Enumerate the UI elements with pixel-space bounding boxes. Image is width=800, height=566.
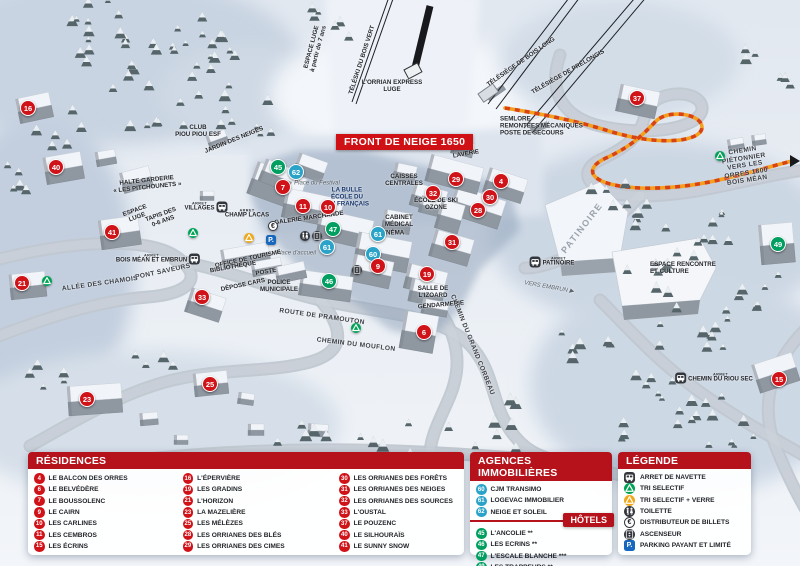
residences-column: 16L'ÉPERVIÈRE19LES GRADINS21L'HORIZON23L… [183,473,340,552]
map-marker-61[interactable]: 61 [319,239,335,255]
item-label: ARRET DE NAVETTE [640,474,706,481]
item-label: TRI SELECTIF [640,485,684,492]
agences-header: AGENCES IMMOBILIÈRES [470,452,612,481]
map-label-patinoire: PATINOIRE [559,201,605,256]
item-label: L'HORIZON [197,498,233,505]
marker-number: 37 [339,519,350,530]
map-marker-4[interactable]: 4 [493,173,509,189]
recycle-yellow-icon [624,495,635,506]
agency-item: 61LOGEVAC IMMOBILIER [476,495,606,506]
item-label: LE BOUSSOLENC [49,498,106,505]
front-de-neige-banner: FRONT DE NEIGE 1650 [336,134,473,150]
toilet-icon [300,231,310,241]
resort-map-page: 1640412133232545627111047616160946196312… [0,0,800,566]
item-label: LE CAIRN [49,509,80,516]
residence-item: 31LES ORRIANES DES NEIGES [339,484,460,495]
hotel-item: 49LES TRAPPEURS ** [476,562,606,566]
residences-column: 30LES ORRIANES DES FORÊTS31LES ORRIANES … [339,473,460,552]
bus-icon [189,254,200,265]
bus-stop-chemin-du-riou-sec: ARRETCHEMIN DU RIOU SEC [675,373,753,384]
marker-number: 10 [34,519,45,530]
marker-number: 47 [476,551,487,562]
marker-number: 4 [34,473,45,484]
map-marker-16[interactable]: 16 [20,100,36,116]
legende-header: LÉGENDE [618,452,751,469]
map-marker-21[interactable]: 21 [14,275,30,291]
bus-stop-label: PATINOIRE [543,261,575,268]
marker-number: 30 [339,473,350,484]
residence-item: 33L'OUSTAL [339,507,460,518]
item-label: LE SUNNY SNOW [354,543,410,550]
bus-stop-villages: ARRETVILLAGES [184,202,227,213]
residence-item: 40LE SILHOURAÏS [339,529,460,540]
map-marker-25[interactable]: 25 [202,376,218,392]
bus-stop-champ-lacas: ARRETCHAMP LACAS [225,209,269,220]
hotel-item: 47L'ESCALE BLANCHE *** [476,550,606,561]
residence-item: 7LE BOUSSOLENC [34,496,183,507]
map-marker-23[interactable]: 23 [79,391,95,407]
hotels-header: HÔTELS [563,513,614,527]
elevator-icon [352,265,362,275]
residence-item: 23LA MAZELIÈRE [183,507,340,518]
recycle-yellow-icon [244,233,254,243]
marker-number: 7 [34,496,45,507]
bus-icon [675,373,686,384]
map-label-salle-de: SALLE DE L'IZOARD [418,285,449,299]
recycle-green-icon [188,228,198,238]
hotel-item: 45L'ANCOLIE ** [476,528,606,539]
bus-stop-label: CHAMP LACAS [225,213,269,220]
agency-item: 60CJM TRANSIMO [476,484,606,495]
item-label: CJM TRANSIMO [491,486,542,493]
map-label-caisses: CAISSES CENTRALES [385,173,423,187]
map-marker-11[interactable]: 11 [295,198,311,214]
item-label: LE BELVÉDÈRE [49,486,99,493]
map-marker-45[interactable]: 45 [270,159,286,175]
item-label: LE POUZENC [354,520,397,527]
map-marker-30[interactable]: 30 [482,189,498,205]
item-label: LES ÉCRINS [49,543,89,550]
map-label-all-e-des-chamois: ALLÉE DES CHAMOIS [61,275,138,293]
item-label: LES MÉLÈZES [197,520,243,527]
item-label: TRI SELECTIF + VERRE [640,497,715,504]
legend-item: TRI SELECTIF + VERRE [624,495,745,506]
map-marker-47[interactable]: 47 [325,221,341,237]
hotel-item: 46LES ECRINS ** [476,539,606,550]
map-label-place-du-festival: Place du Festival [294,181,340,188]
item-label: ASCENSEUR [640,531,681,538]
item-label: L'ÉPERVIÈRE [197,475,240,482]
marker-number: 6 [34,485,45,496]
residence-item: 16L'ÉPERVIÈRE [183,473,340,484]
euro-icon: € [268,221,278,231]
residence-item: 28LES ORRIANES DES BLÉS [183,529,340,540]
legend-item: TOILETTE [624,506,745,517]
marker-number: 21 [183,496,194,507]
map-marker-9[interactable]: 9 [370,258,386,274]
map-label-espace-luge: ESPACE LUGE à partir de 7 ans [302,23,328,73]
residence-item: 41LE SUNNY SNOW [339,541,460,552]
residence-item: 25LES MÉLÈZES [183,518,340,529]
item-label: NEIGE ET SOLEIL [491,509,547,516]
hotels-divider: HÔTELS [470,520,612,522]
item-label: LES ORRIANES DES SOURCES [354,498,453,505]
map-marker-49[interactable]: 49 [770,236,786,252]
item-label: LE SILHOURAÏS [354,532,405,539]
map-marker-29[interactable]: 29 [448,171,464,187]
residences-header: RÉSIDENCES [28,452,464,469]
map-marker-46[interactable]: 46 [321,273,337,289]
recycle-green-icon [42,276,52,286]
residence-item: 11LES CEMBROS [34,529,183,540]
item-label: LES CEMBROS [49,532,97,539]
recycle-green-icon [715,151,725,161]
bus-stop-label: BOIS MÉAN ET EMBRUN [116,258,187,265]
toilet-icon [624,506,635,517]
map-label-chemin-pi-tonnier: CHEMIN PIÉTONNIER VERS LES ORRES 1800 BO… [715,143,775,189]
marker-number: 29 [183,541,194,552]
map-marker-62[interactable]: 62 [288,164,304,180]
elevator-icon [624,529,635,540]
residence-item: 6LE BELVÉDÈRE [34,484,183,495]
map-marker-41[interactable]: 41 [104,224,120,240]
marker-number: 49 [476,562,487,566]
residence-item: 30LES ORRIANES DES FORÊTS [339,473,460,484]
residence-item: 37LE POUZENC [339,518,460,529]
item-label: LA MAZELIÈRE [197,509,245,516]
marker-number: 25 [183,519,194,530]
agences-panel: AGENCES IMMOBILIÈRES 60CJM TRANSIMO61LOG… [470,452,612,555]
item-label: LES ORRIANES DES FORÊTS [354,475,447,482]
marker-number: 46 [476,540,487,551]
item-label: LES GRADINS [197,486,242,493]
residences-list: 4LE BALCON DES ORRES6LE BELVÉDÈRE7LE BOU… [28,469,464,552]
map-marker-32[interactable]: 32 [425,185,441,201]
map-marker-19[interactable]: 19 [419,266,435,282]
hotels-list: 45L'ANCOLIE **46LES ECRINS **47L'ESCALE … [470,525,612,566]
map-marker-37[interactable]: 37 [629,90,645,106]
residence-item: 9LE CAIRN [34,507,183,518]
bus-stop-label: VILLAGES [184,206,214,213]
map-label-pont-saveurs: PONT SAVEURS [135,262,192,281]
item-label: L'OUSTAL [354,509,386,516]
item-label: LOGEVAC IMMOBILIER [491,497,565,504]
item-label: LES ORRIANES DES NEIGES [354,486,446,493]
residence-item: 29LES ORRIANES DES CIMES [183,541,340,552]
map-label-place-d-accueil: Place d'accueil [276,251,316,258]
item-label: LES CARLINES [49,520,97,527]
marker-number: 33 [339,507,350,518]
legende-panel: LÉGENDE ARRET DE NAVETTETRI SELECTIFTRI … [618,452,751,555]
map-label-espace-rencontre: ESPACE RENCONTRE ET CULTURE [650,261,716,275]
item-label: LES ECRINS ** [491,541,538,548]
euro-icon: € [624,517,635,528]
residence-item: 21L'HORIZON [183,496,340,507]
item-label: DISTRIBUTEUR DE BILLETS [640,519,729,526]
marker-number: 60 [476,484,487,495]
item-label: LES ORRIANES DES BLÉS [197,532,281,539]
map-marker-40[interactable]: 40 [48,159,64,175]
residence-item: 19LES GRADINS [183,484,340,495]
map-marker-61[interactable]: 61 [370,226,386,242]
recycle-green-icon [624,483,635,494]
map-label-police: POLICE MUNICIPALE [260,279,298,293]
map-label-semlore: SEMLORE REMONTÉES MÉCANIQUES POSTE DE SE… [500,115,583,136]
marker-number: 16 [183,473,194,484]
item-label: L'ANCOLIE ** [491,530,533,537]
map-label-vers-embrun: VERS EMBRUN ▶ [524,280,575,296]
legend-item: ARRET DE NAVETTE [624,472,745,483]
residence-item: 15LES ÉCRINS [34,541,183,552]
map-label-tapis-des: TAPIS DES 0-6 ANS [144,206,179,230]
legend-item: TRI SELECTIF [624,483,745,494]
legend-item: P.PARKING PAYANT ET LIMITÉ [624,540,745,551]
parking-icon: P. [624,540,635,551]
map-label-halte-garderie: HALTE GARDERIE « LES PITCHOUNETS » [112,173,182,194]
map-label-t-l-si-ge-de-pr-longis: TÉLÉSIÈGE DE PRÉLONGIS [530,48,606,96]
map-marker-15[interactable]: 15 [771,371,787,387]
marker-number: 11 [34,530,45,541]
map-marker-7[interactable]: 7 [275,179,291,195]
marker-number: 61 [476,496,487,507]
legend-item: €DISTRIBUTEUR DE BILLETS [624,517,745,528]
map-marker-31[interactable]: 31 [444,234,460,250]
item-label: LE BALCON DES ORRES [49,475,128,482]
marker-number: 9 [34,507,45,518]
bus-stop-label: CHEMIN DU RIOU SEC [688,377,753,384]
map-marker-28[interactable]: 28 [470,202,486,218]
map-label-poste: POSTE [255,267,277,278]
bus-icon [624,472,635,483]
marker-number: 15 [34,541,45,552]
map-label-club: CLUB PIOU PIOU ESF [175,124,221,138]
bus-stop-patinoire: ARRETPATINOIRE [530,257,575,268]
marker-number: 45 [476,528,487,539]
parking-icon: P. [266,235,276,245]
map-label-chemin-du-mouflon: CHEMIN DU MOUFLON [316,336,396,353]
legende-list: ARRET DE NAVETTETRI SELECTIFTRI SELECTIF… [618,469,751,551]
map-label-d-pose-cars: DÉPOSE CARS [220,277,266,293]
item-label: L'ESCALE BLANCHE *** [491,553,567,560]
elevator-icon [312,231,322,241]
marker-number: 31 [339,485,350,496]
item-label: TOILETTE [640,508,672,515]
residence-item: 10LES CARLINES [34,518,183,529]
item-label: LES ORRIANES DES CIMES [197,543,285,550]
recycle-green-icon [351,323,361,333]
map-label-cabinet: CABINET MÉDICAL [385,214,413,228]
marker-number: 28 [183,530,194,541]
residences-panel: RÉSIDENCES 4LE BALCON DES ORRES6LE BELVÉ… [28,452,464,555]
legend-item: ASCENSEUR [624,528,745,539]
map-marker-10[interactable]: 10 [320,199,336,215]
map-marker-33[interactable]: 33 [194,289,210,305]
residence-item: 32LES ORRIANES DES SOURCES [339,496,460,507]
bus-icon [530,257,541,268]
map-marker-6[interactable]: 6 [416,324,432,340]
marker-number: 19 [183,485,194,496]
marker-number: 32 [339,496,350,507]
map-label-l-orrian-express: L'ORRIAN EXPRESS LUGE [362,79,423,93]
residences-column: 4LE BALCON DES ORRES6LE BELVÉDÈRE7LE BOU… [34,473,183,552]
marker-number: 40 [339,530,350,541]
bus-stop-bois-m-an-et-embrun: ARRETBOIS MÉAN ET EMBRUN [116,254,200,265]
marker-number: 23 [183,507,194,518]
item-label: PARKING PAYANT ET LIMITÉ [640,542,731,549]
marker-number: 41 [339,541,350,552]
residence-item: 4LE BALCON DES ORRES [34,473,183,484]
map-label-chemin-du-grand-corbeau: CHEMIN DU GRAND CORBEAU [448,294,495,397]
marker-number: 62 [476,507,487,518]
